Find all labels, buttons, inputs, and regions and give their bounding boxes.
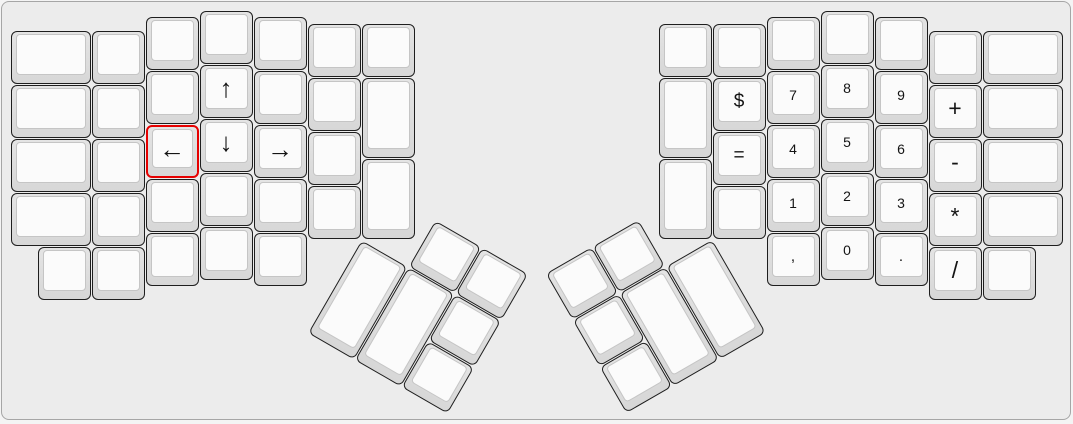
- key-blank[interactable]: [659, 78, 712, 158]
- key-digit-0[interactable]: 0: [821, 227, 874, 280]
- keycap-top-surface: [988, 196, 1058, 237]
- keycap-top-surface: [97, 196, 140, 237]
- keycap-top-surface: 5: [826, 122, 869, 163]
- key-blank[interactable]: [659, 159, 712, 239]
- key-blank[interactable]: [308, 24, 361, 77]
- key-legend-asterisk: *: [951, 205, 960, 228]
- keycap-top-surface: [313, 27, 356, 68]
- key-blank[interactable]: [254, 17, 307, 70]
- key-blank[interactable]: [200, 173, 253, 226]
- keycap-top-surface: [16, 142, 86, 183]
- keycap-top-surface: [97, 34, 140, 75]
- key-blank[interactable]: [767, 17, 820, 70]
- keycap-top-surface: [97, 142, 140, 183]
- keycap-top-surface: [97, 250, 140, 291]
- keycap-top-surface: [151, 20, 194, 61]
- key-blank[interactable]: [200, 11, 253, 64]
- keycap-top-surface: ,: [772, 236, 815, 277]
- key-blank[interactable]: [875, 17, 928, 70]
- key-blank[interactable]: [983, 139, 1063, 192]
- key-blank[interactable]: [713, 186, 766, 239]
- keycap-top-surface: [313, 81, 356, 122]
- key-arrow-left[interactable]: ←: [146, 125, 199, 178]
- keycap-top-surface: [718, 189, 761, 230]
- keycap-top-surface: [97, 88, 140, 129]
- key-arrow-down[interactable]: ↓: [200, 119, 253, 172]
- key-legend-dollar: $: [734, 92, 745, 111]
- key-digit-1[interactable]: 1: [767, 179, 820, 232]
- keycap-top-surface: 8: [826, 68, 869, 109]
- key-arrow-up[interactable]: ↑: [200, 65, 253, 118]
- keycap-top-surface: [718, 27, 761, 68]
- key-digit-9[interactable]: 9: [875, 71, 928, 124]
- keycap-top-surface: [464, 253, 522, 310]
- keycap-top-surface: -: [934, 142, 977, 183]
- key-equals[interactable]: =: [713, 132, 766, 185]
- key-digit-7[interactable]: 7: [767, 71, 820, 124]
- keycap-top-surface: +: [934, 88, 977, 129]
- key-digit-5[interactable]: 5: [821, 119, 874, 172]
- keycap-top-surface: 3: [880, 182, 923, 223]
- key-blank[interactable]: [92, 193, 145, 246]
- key-legend-digit-5: 5: [843, 135, 851, 149]
- key-digit-8[interactable]: 8: [821, 65, 874, 118]
- keycap-top-surface: ↑: [205, 68, 248, 109]
- key-legend-digit-9: 9: [897, 88, 905, 102]
- key-legend-arrow-right: →: [267, 136, 293, 162]
- keycap-top-surface: [988, 142, 1058, 183]
- keycap-top-surface: $: [718, 81, 761, 122]
- key-blank[interactable]: [821, 11, 874, 64]
- keycap-top-surface: /: [934, 250, 977, 291]
- key-blank[interactable]: [983, 85, 1063, 138]
- key-blank[interactable]: [659, 24, 712, 77]
- key-digit-6[interactable]: 6: [875, 125, 928, 178]
- key-blank[interactable]: [254, 179, 307, 232]
- keycap-top-surface: [16, 88, 86, 129]
- key-slash[interactable]: /: [929, 247, 982, 300]
- keycap-top-surface: [772, 20, 815, 61]
- key-legend-digit-7: 7: [789, 88, 797, 102]
- key-legend-digit-1: 1: [789, 196, 797, 210]
- keycap-top-surface: =: [718, 135, 761, 176]
- key-blank[interactable]: [146, 233, 199, 286]
- key-legend-arrow-down: ↓: [220, 129, 233, 155]
- key-asterisk[interactable]: *: [929, 193, 982, 246]
- key-blank[interactable]: [92, 247, 145, 300]
- key-blank[interactable]: [254, 233, 307, 286]
- key-period[interactable]: .: [875, 233, 928, 286]
- key-blank[interactable]: [308, 132, 361, 185]
- key-blank[interactable]: [983, 31, 1063, 84]
- key-legend-arrow-left: ←: [159, 136, 185, 162]
- keycap-top-surface: 6: [880, 128, 923, 169]
- key-comma[interactable]: ,: [767, 233, 820, 286]
- key-legend-digit-6: 6: [897, 142, 905, 156]
- keycap-top-surface: 9: [880, 74, 923, 115]
- keycap-top-surface: [880, 20, 923, 61]
- key-legend-slash: /: [952, 259, 958, 282]
- key-legend-equals: =: [733, 146, 744, 165]
- key-legend-digit-2: 2: [843, 189, 851, 203]
- keycap-top-surface: 2: [826, 176, 869, 217]
- key-minus[interactable]: -: [929, 139, 982, 192]
- keycap-top-surface: *: [934, 196, 977, 237]
- key-blank[interactable]: [11, 85, 91, 138]
- keycap-top-surface: [43, 250, 86, 291]
- key-legend-period: .: [899, 249, 903, 264]
- keycap-top-surface: [988, 34, 1058, 75]
- key-digit-3[interactable]: 3: [875, 179, 928, 232]
- key-arrow-right[interactable]: →: [254, 125, 307, 178]
- key-legend-plus: +: [948, 97, 961, 120]
- keycap-top-surface: [151, 182, 194, 223]
- key-blank[interactable]: [92, 139, 145, 192]
- keycap-top-surface: [313, 135, 356, 176]
- key-blank[interactable]: [38, 247, 91, 300]
- key-blank[interactable]: [200, 227, 253, 280]
- key-legend-minus: -: [951, 151, 959, 174]
- keycap-top-surface: 7: [772, 74, 815, 115]
- keycap-top-surface: [259, 182, 302, 223]
- key-blank[interactable]: [11, 193, 91, 246]
- keycap-top-surface: [934, 34, 977, 75]
- key-legend-digit-8: 8: [843, 81, 851, 95]
- key-legend-digit-3: 3: [897, 196, 905, 210]
- keycap-top-surface: [259, 74, 302, 115]
- key-blank[interactable]: [92, 85, 145, 138]
- key-legend-comma: ,: [791, 249, 795, 264]
- key-legend-digit-0: 0: [843, 243, 851, 257]
- keycap-top-surface: [367, 162, 410, 230]
- keycap-top-surface: [205, 230, 248, 271]
- key-blank[interactable]: [254, 71, 307, 124]
- key-legend-digit-4: 4: [789, 142, 797, 156]
- keycap-top-surface: [16, 196, 86, 237]
- keycap-top-surface: [367, 27, 410, 68]
- key-plus[interactable]: +: [929, 85, 982, 138]
- key-blank[interactable]: [146, 71, 199, 124]
- keycap-top-surface: [259, 236, 302, 277]
- keycap-top-surface: [151, 236, 194, 277]
- key-blank[interactable]: [362, 159, 415, 239]
- key-blank[interactable]: [362, 24, 415, 77]
- key-digit-4[interactable]: 4: [767, 125, 820, 178]
- keycap-top-surface: [16, 34, 86, 75]
- keycap-top-surface: [664, 162, 707, 230]
- keycap-top-surface: 1: [772, 182, 815, 223]
- key-blank[interactable]: [362, 78, 415, 158]
- keycap-top-surface: ↓: [205, 122, 248, 163]
- keycap-top-surface: →: [259, 128, 302, 169]
- keycap-top-surface: 0: [826, 230, 869, 271]
- key-digit-2[interactable]: 2: [821, 173, 874, 226]
- keycap-top-surface: [313, 189, 356, 230]
- keycap-top-surface: [664, 81, 707, 149]
- key-legend-arrow-up: ↑: [220, 75, 233, 101]
- key-blank[interactable]: [11, 31, 91, 84]
- keycap-top-surface: ←: [152, 129, 193, 168]
- key-blank[interactable]: [92, 31, 145, 84]
- key-blank[interactable]: [308, 186, 361, 239]
- key-blank[interactable]: [929, 31, 982, 84]
- key-blank[interactable]: [146, 17, 199, 70]
- key-blank[interactable]: [146, 179, 199, 232]
- keycap-top-surface: 4: [772, 128, 815, 169]
- keyboard: ←↑↓→$=741,8520963.+-*/: [0, 0, 1073, 424]
- keycap-top-surface: [205, 14, 248, 55]
- keycap-top-surface: [826, 14, 869, 55]
- keycap-top-surface: .: [880, 236, 923, 277]
- key-blank[interactable]: [11, 139, 91, 192]
- key-blank[interactable]: [983, 247, 1036, 300]
- keycap-top-surface: [205, 176, 248, 217]
- keyboard-layout-editor-canvas: ←↑↓→$=741,8520963.+-*/: [0, 0, 1073, 424]
- key-blank[interactable]: [308, 78, 361, 131]
- key-dollar[interactable]: $: [713, 78, 766, 131]
- keycap-top-surface: [988, 250, 1031, 291]
- keycap-top-surface: [988, 88, 1058, 129]
- keycap-top-surface: [664, 27, 707, 68]
- keycap-top-surface: [367, 81, 410, 149]
- keycap-top-surface: [259, 20, 302, 61]
- key-blank[interactable]: [713, 24, 766, 77]
- key-blank[interactable]: [983, 193, 1063, 246]
- keycap-top-surface: [151, 74, 194, 115]
